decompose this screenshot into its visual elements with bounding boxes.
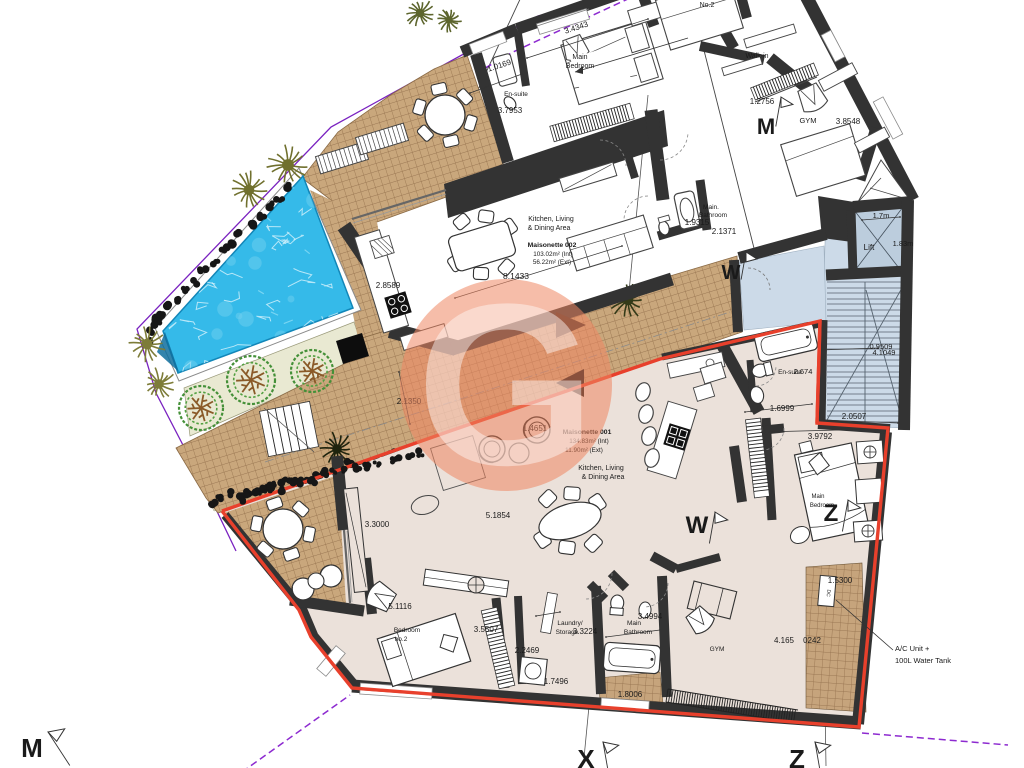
svg-text:Bathroom: Bathroom [624, 629, 652, 636]
svg-text:Z: Z [824, 500, 839, 527]
svg-text:En-suite: En-suite [504, 91, 528, 98]
svg-text:3.8548: 3.8548 [836, 117, 861, 126]
svg-text:4.165: 4.165 [774, 636, 795, 645]
svg-text:Main: Main [572, 54, 587, 61]
svg-text:1.7m: 1.7m [873, 211, 890, 220]
svg-text:1.83m: 1.83m [893, 239, 914, 248]
svg-text:M: M [21, 733, 43, 763]
svg-text:3.3224: 3.3224 [573, 627, 598, 636]
svg-text:3.3000: 3.3000 [365, 520, 390, 529]
svg-text:3.9792: 3.9792 [808, 432, 833, 441]
svg-text:Z: Z [789, 744, 805, 768]
svg-text:no.2: no.2 [395, 636, 408, 643]
svg-text:3.4994: 3.4994 [638, 612, 663, 621]
svg-text:1.8006: 1.8006 [618, 690, 643, 699]
svg-text:G: G [417, 256, 596, 513]
svg-text:1.2756: 1.2756 [750, 97, 775, 106]
svg-text:Maisonette 002: Maisonette 002 [528, 242, 577, 249]
svg-text:Bedroom: Bedroom [394, 627, 420, 634]
svg-text:3.7953: 3.7953 [498, 106, 523, 115]
svg-text:100L Water Tank: 100L Water Tank [895, 656, 951, 665]
svg-text:2.0507: 2.0507 [842, 412, 867, 421]
svg-text:4.1049: 4.1049 [873, 348, 896, 357]
svg-text:GYM: GYM [799, 116, 816, 125]
svg-text:2.1371: 2.1371 [712, 227, 737, 236]
svg-text:& Dining Area: & Dining Area [528, 225, 571, 232]
svg-text:Main.: Main. [703, 204, 719, 211]
svg-text:0242: 0242 [803, 636, 821, 645]
svg-text:1.5300: 1.5300 [828, 576, 853, 585]
svg-text:1.7496: 1.7496 [544, 677, 569, 686]
svg-text:No.2: No.2 [700, 2, 715, 9]
svg-text:Lift: Lift [864, 243, 875, 252]
svg-text:Main: Main [811, 494, 824, 500]
svg-text:5.1116: 5.1116 [388, 602, 412, 611]
svg-text:2.2469: 2.2469 [515, 646, 540, 655]
svg-text:1.6999: 1.6999 [770, 404, 795, 413]
svg-text:Bedroom: Bedroom [566, 63, 595, 70]
svg-text:W: W [722, 262, 741, 284]
svg-text:A/C Unit +: A/C Unit + [895, 644, 930, 653]
svg-text:3.5507: 3.5507 [474, 625, 499, 634]
svg-text:Walk-in: Walk-in [745, 53, 768, 60]
svg-text:M: M [757, 114, 775, 139]
svg-text:2.674: 2.674 [794, 367, 813, 376]
svg-text:Main: Main [627, 620, 641, 627]
svg-text:2.8589: 2.8589 [376, 281, 401, 290]
svg-text:Kitchen, Living: Kitchen, Living [528, 216, 574, 223]
svg-text:DC: DC [825, 589, 832, 597]
svg-text:Laundry/: Laundry/ [557, 620, 582, 627]
svg-text:GYM: GYM [710, 646, 725, 653]
svg-text:X: X [577, 744, 595, 768]
svg-text:W: W [686, 512, 709, 539]
svg-text:1.9315: 1.9315 [685, 218, 710, 227]
